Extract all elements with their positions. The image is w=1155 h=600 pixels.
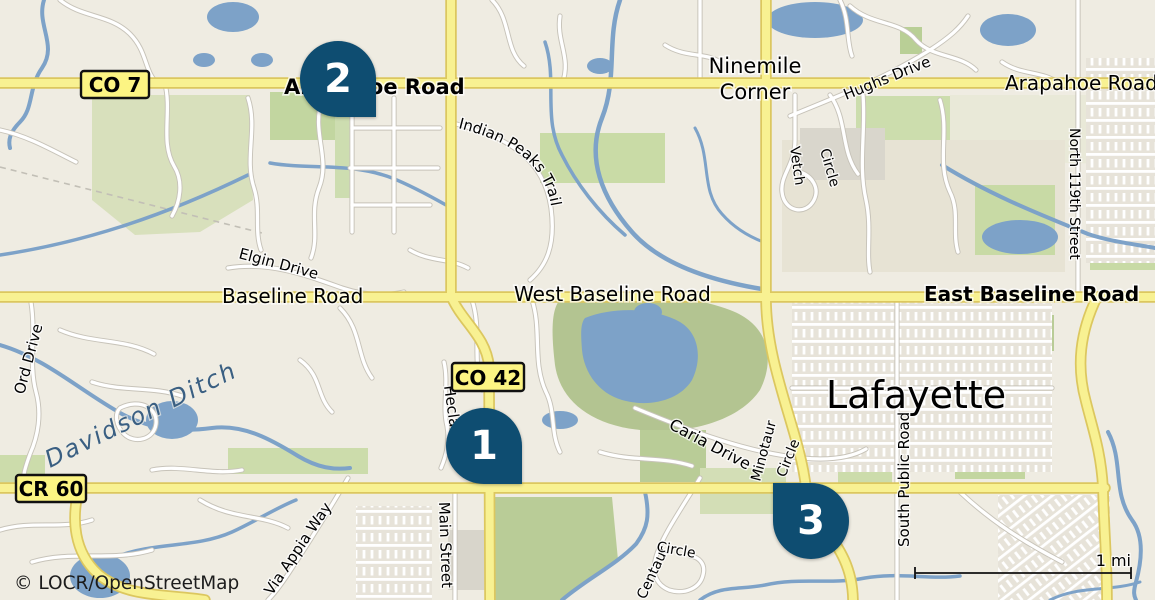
city-label-lafayette: Lafayette	[826, 373, 1006, 417]
road-label-west-baseline: West Baseline Road	[514, 282, 711, 306]
map-marker-1-number: 1	[470, 423, 498, 469]
map-canvas[interactable]: 1 mi Arapahoe Road Ninemile Corner Hughs…	[0, 0, 1155, 600]
place-label-corner: Corner	[720, 80, 791, 104]
badge-co7: CO 7	[81, 71, 149, 98]
badge-cr60-label: CR 60	[19, 477, 84, 501]
map-marker-1[interactable]: 1	[446, 408, 522, 484]
road-label-east-baseline: East Baseline Road	[924, 282, 1139, 306]
road-label-arapahoe-east: Arapahoe Road	[1005, 71, 1155, 95]
place-label-ninemile: Ninemile	[709, 54, 802, 78]
map-marker-3-number: 3	[797, 498, 825, 544]
road-label-south-public: South Public Road	[895, 412, 913, 547]
road-label-north-119th: North 119th Street	[1066, 128, 1082, 260]
badge-co7-label: CO 7	[89, 73, 142, 97]
scale-label: 1 mi	[1096, 551, 1131, 570]
map-base-layer: 1 mi Arapahoe Road Ninemile Corner Hughs…	[0, 0, 1155, 600]
map-marker-2[interactable]: 2	[300, 41, 376, 117]
badge-cr60: CR 60	[16, 475, 86, 502]
road-label-main-street: Main Street	[435, 502, 456, 589]
map-marker-2-number: 2	[324, 56, 352, 102]
badge-co42: CO 42	[452, 363, 524, 391]
badge-co42-label: CO 42	[455, 366, 521, 390]
road-label-baseline: Baseline Road	[222, 284, 363, 308]
map-marker-3[interactable]: 3	[773, 483, 849, 559]
map-attribution: © LOCR/OpenStreetMap	[14, 573, 239, 594]
